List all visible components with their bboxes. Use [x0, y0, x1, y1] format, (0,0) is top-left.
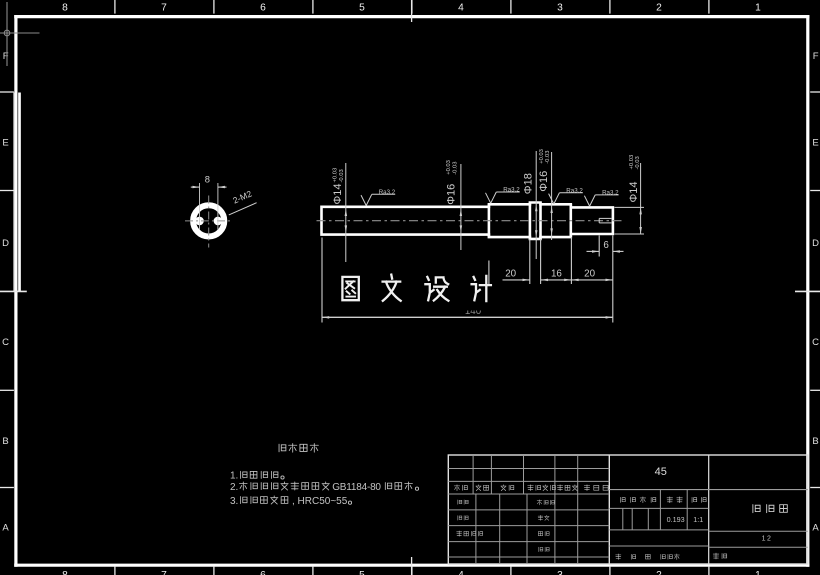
svg-text:+0.03: +0.03 [629, 155, 635, 170]
svg-text:Φ16: Φ16 [445, 184, 457, 205]
svg-text:8: 8 [205, 173, 210, 184]
svg-text:B: B [812, 436, 818, 447]
svg-text:-0.03: -0.03 [635, 156, 641, 169]
svg-text:B: B [2, 436, 8, 447]
svg-text:Ra3.2: Ra3.2 [602, 190, 619, 197]
svg-text:2: 2 [656, 570, 662, 575]
svg-text:2.: 2. [230, 482, 238, 493]
svg-text:6: 6 [260, 570, 266, 575]
svg-text:Φ18: Φ18 [523, 173, 535, 194]
svg-text:C: C [812, 337, 819, 348]
svg-text:Φ14: Φ14 [332, 183, 344, 204]
svg-text:4: 4 [458, 570, 464, 575]
svg-text:Φ16: Φ16 [538, 171, 550, 192]
svg-text:D: D [812, 238, 819, 249]
svg-text:Ra3.2: Ra3.2 [379, 189, 396, 196]
svg-text:1:1: 1:1 [693, 515, 703, 524]
svg-text:E: E [2, 137, 8, 148]
svg-text:16: 16 [551, 269, 562, 280]
svg-text:8: 8 [62, 3, 68, 14]
svg-text:F: F [813, 51, 819, 62]
svg-text:A: A [812, 522, 819, 533]
svg-text:12: 12 [762, 535, 773, 542]
svg-text:1.: 1. [230, 471, 238, 482]
svg-text:5: 5 [359, 3, 365, 14]
svg-text:C: C [2, 337, 9, 348]
svg-text:6: 6 [260, 3, 266, 14]
svg-text:+0.03: +0.03 [446, 160, 452, 175]
svg-text:1: 1 [755, 3, 761, 14]
svg-text:+0.03: +0.03 [333, 168, 339, 183]
svg-text:-0.03: -0.03 [545, 151, 551, 164]
svg-text:1: 1 [755, 570, 761, 575]
svg-text:0.193: 0.193 [667, 515, 685, 524]
svg-text:-0.03: -0.03 [452, 162, 458, 175]
svg-text:Ra3.2: Ra3.2 [503, 187, 520, 194]
svg-text:5: 5 [359, 570, 365, 575]
svg-text:A: A [2, 522, 9, 533]
svg-text:4: 4 [458, 3, 464, 14]
svg-text:20: 20 [505, 269, 516, 280]
svg-text:D: D [2, 238, 9, 249]
svg-text:F: F [3, 51, 9, 62]
svg-text:GB1184-80: GB1184-80 [332, 482, 381, 493]
svg-text:E: E [812, 137, 818, 148]
svg-text:2: 2 [656, 3, 662, 14]
svg-text:Ra3.2: Ra3.2 [566, 187, 583, 194]
svg-text:Φ14: Φ14 [628, 181, 640, 202]
svg-text:7: 7 [161, 570, 167, 575]
svg-text:, HRC50~55: , HRC50~55 [292, 496, 348, 507]
svg-text:6: 6 [603, 240, 609, 251]
svg-text:3: 3 [557, 570, 563, 575]
svg-text:45: 45 [655, 466, 667, 478]
svg-text:3.: 3. [230, 496, 238, 507]
svg-text:3: 3 [557, 3, 563, 14]
svg-text:7: 7 [161, 3, 167, 14]
svg-text:20: 20 [584, 269, 595, 280]
svg-text:8: 8 [62, 570, 68, 575]
svg-text:-0.03: -0.03 [339, 169, 345, 182]
svg-text:+0.03: +0.03 [539, 149, 545, 164]
